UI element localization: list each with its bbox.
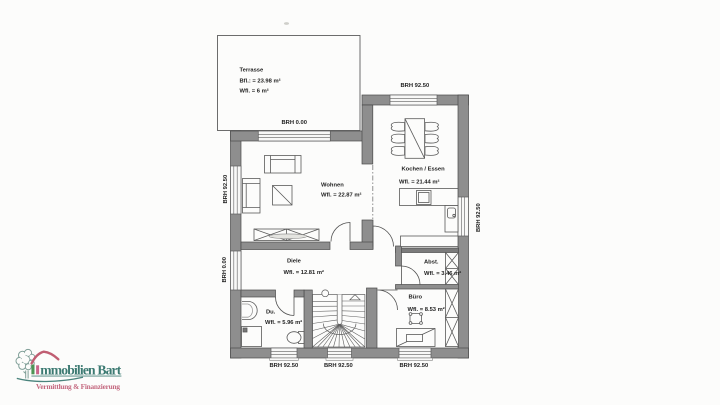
svg-text:BRH 0.00: BRH 0.00	[222, 257, 228, 282]
svg-text:Wfl. = 5.96 m²: Wfl. = 5.96 m²	[265, 319, 302, 326]
svg-text:BRH 92.50: BRH 92.50	[270, 363, 299, 369]
svg-text:Abst.: Abst.	[424, 260, 439, 266]
svg-text:Wfl. = 8.53 m²: Wfl. = 8.53 m²	[408, 306, 445, 313]
svg-text:Wfl. = 6 m²: Wfl. = 6 m²	[240, 88, 269, 95]
svg-text:Kochen / Essen: Kochen / Essen	[402, 167, 446, 173]
svg-text:mmobilien Bart: mmobilien Bart	[40, 362, 121, 377]
svg-text:Diele: Diele	[287, 259, 302, 265]
svg-text:Wfl. = 21.44 m²: Wfl. = 21.44 m²	[399, 179, 440, 186]
svg-text:Wfl. = 22.87 m²: Wfl. = 22.87 m²	[321, 192, 362, 199]
svg-text:Vermittlung & Finanzierung: Vermittlung & Finanzierung	[36, 382, 120, 391]
svg-text:Terrasse: Terrasse	[240, 68, 265, 74]
svg-text:BRH 92.50: BRH 92.50	[400, 363, 429, 369]
svg-text:BRH 92.50: BRH 92.50	[223, 175, 229, 204]
svg-text:BRH 92.50: BRH 92.50	[401, 83, 430, 89]
svg-text:Wohnen: Wohnen	[321, 183, 344, 189]
svg-text:Wfl. = 3.46 m²: Wfl. = 3.46 m²	[424, 270, 461, 277]
svg-text:BRH 92.50: BRH 92.50	[476, 203, 482, 232]
svg-text:BRH 92.50: BRH 92.50	[324, 363, 353, 369]
svg-text:Bfl.: = 23.98 m²: Bfl.: = 23.98 m²	[240, 78, 281, 85]
svg-text:BRH 0.00: BRH 0.00	[282, 120, 307, 126]
svg-text:Wfl. = 12.81 m²: Wfl. = 12.81 m²	[284, 269, 325, 276]
svg-text:Büro: Büro	[409, 295, 423, 301]
svg-text:Du.: Du.	[266, 310, 276, 316]
